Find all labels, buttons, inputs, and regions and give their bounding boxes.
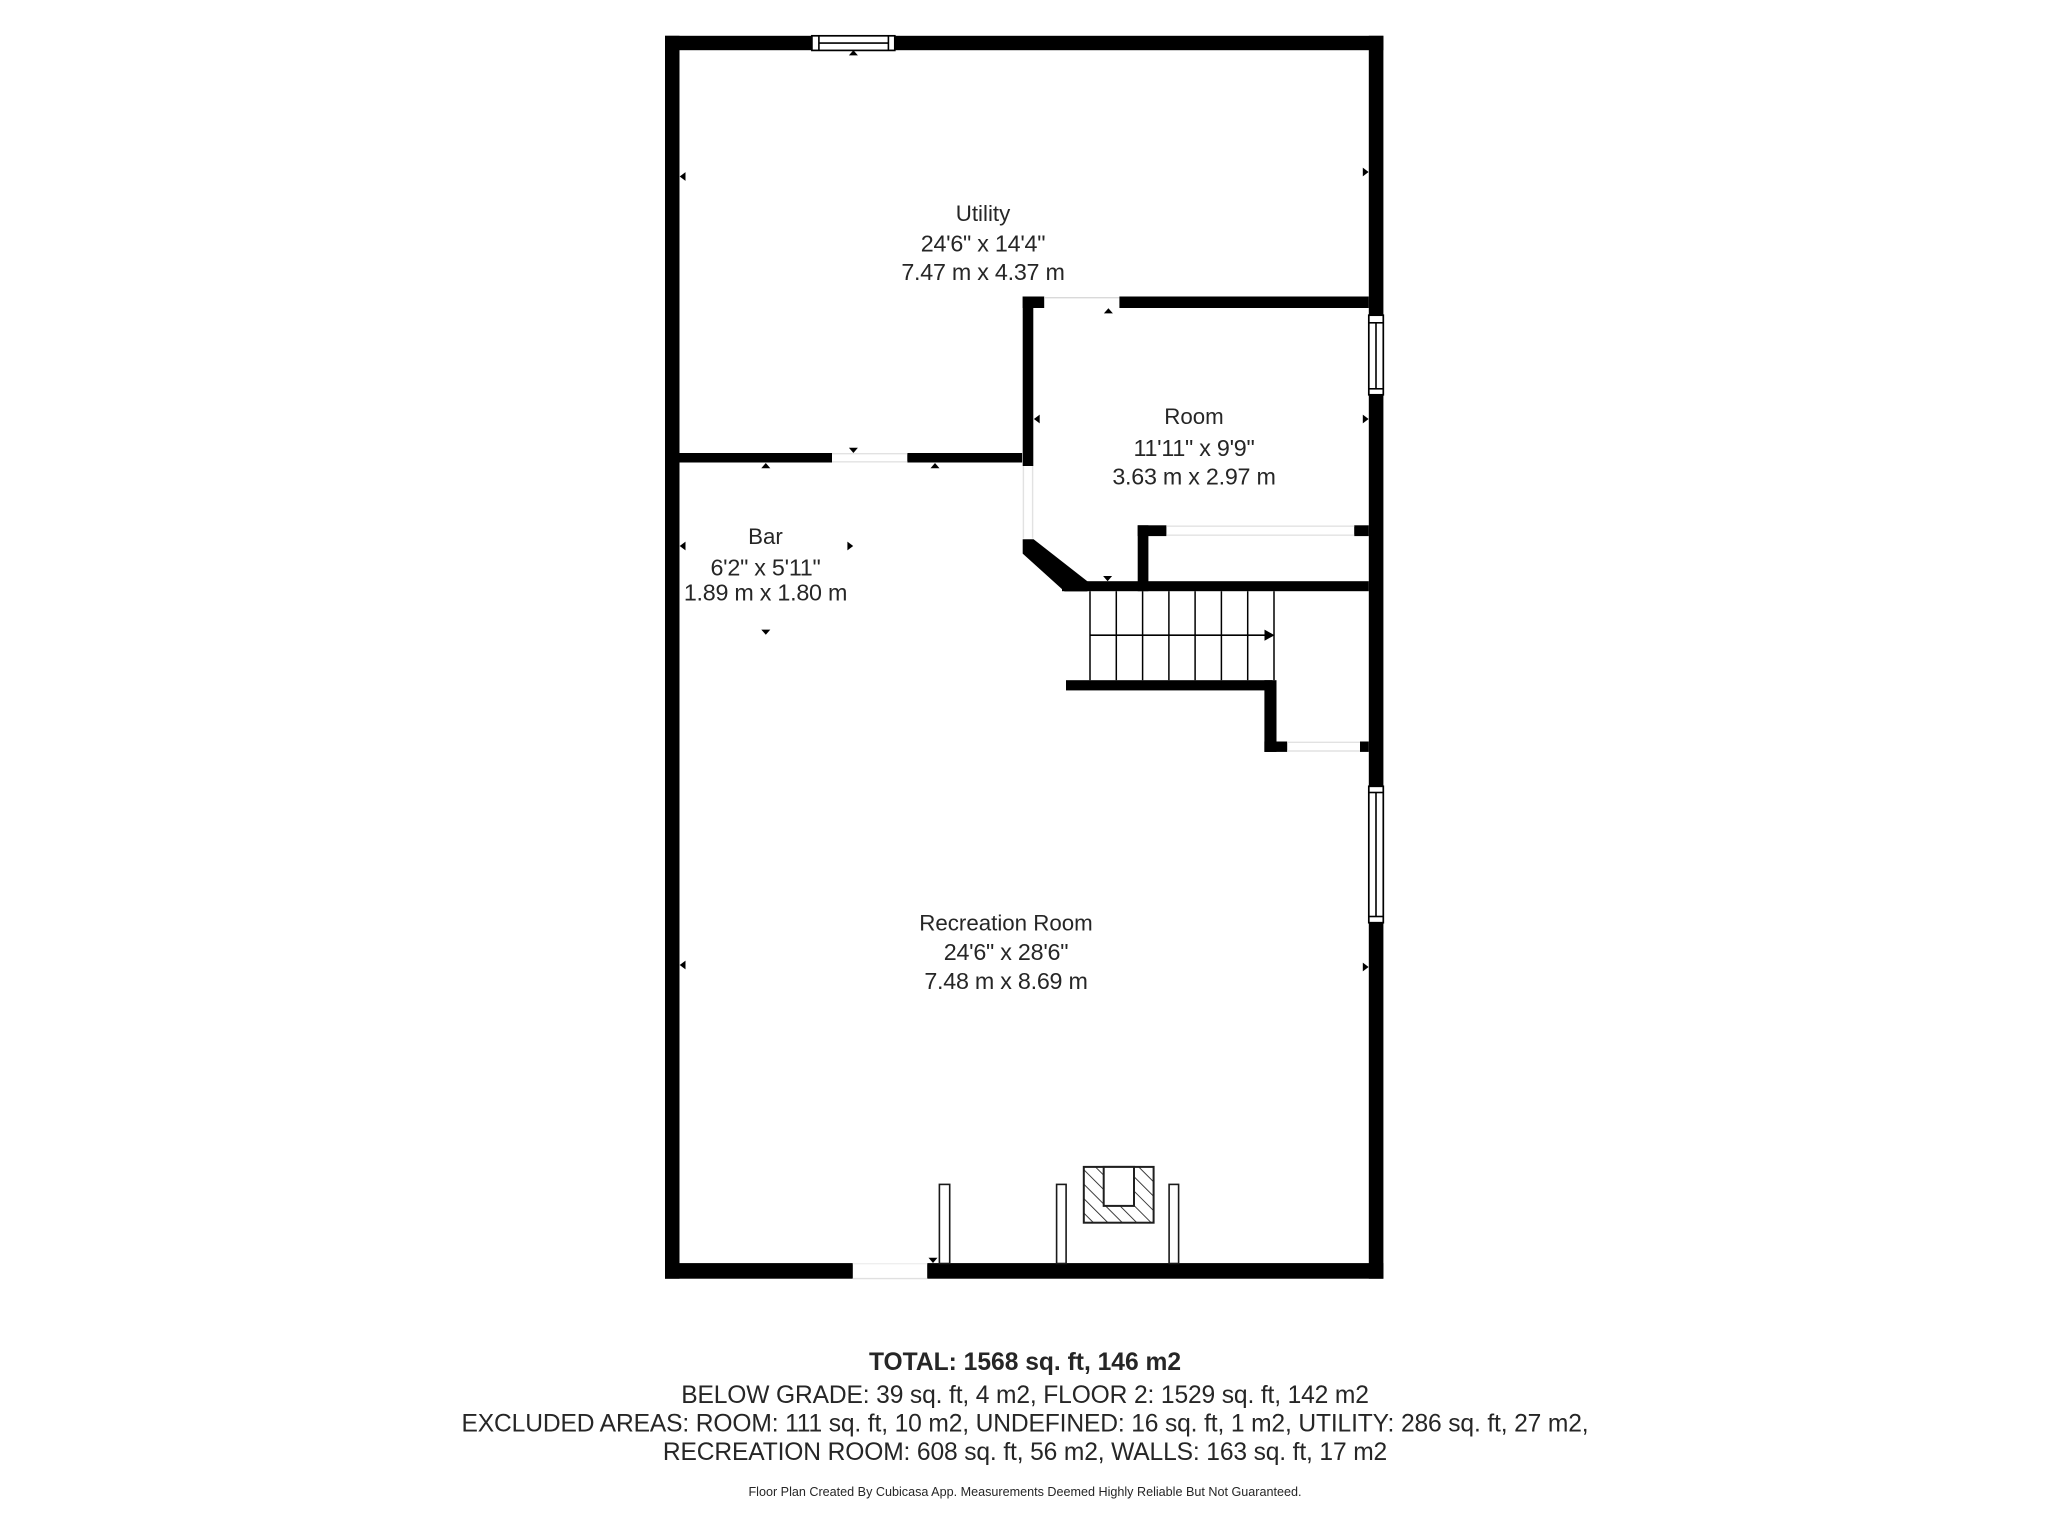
svg-text:Utility: Utility (956, 201, 1011, 226)
svg-text:1.89 m x 1.80 m: 1.89 m x 1.80 m (684, 580, 847, 606)
svg-text:BELOW GRADE: 39 sq. ft, 4 m2,: BELOW GRADE: 39 sq. ft, 4 m2, FLOOR 2: 1… (681, 1382, 1369, 1409)
svg-text:Recreation Room: Recreation Room (919, 910, 1093, 935)
svg-text:11'11" x 9'9": 11'11" x 9'9" (1133, 435, 1254, 461)
svg-text:Room: Room (1164, 404, 1223, 429)
svg-text:3.63 m x 2.97 m: 3.63 m x 2.97 m (1112, 464, 1275, 490)
svg-text:24'6" x 14'4": 24'6" x 14'4" (921, 230, 1046, 256)
svg-text:7.48 m x 8.69 m: 7.48 m x 8.69 m (924, 968, 1087, 994)
svg-text:7.47 m x 4.37 m: 7.47 m x 4.37 m (901, 259, 1064, 285)
svg-text:6'2" x 5'11": 6'2" x 5'11" (710, 555, 820, 581)
svg-text:TOTAL: 1568 sq. ft, 146 m2: TOTAL: 1568 sq. ft, 146 m2 (869, 1349, 1181, 1376)
svg-text:EXCLUDED AREAS: ROOM: 111 sq.: EXCLUDED AREAS: ROOM: 111 sq. ft, 10 m2,… (462, 1411, 1589, 1438)
svg-text:24'6" x 28'6": 24'6" x 28'6" (944, 939, 1069, 965)
svg-text:Bar: Bar (748, 524, 783, 549)
svg-text:RECREATION ROOM: 608 sq. ft, 5: RECREATION ROOM: 608 sq. ft, 56 m2, WALL… (663, 1439, 1387, 1466)
svg-text:Floor Plan Created By Cubicasa: Floor Plan Created By Cubicasa App. Meas… (748, 1485, 1301, 1499)
